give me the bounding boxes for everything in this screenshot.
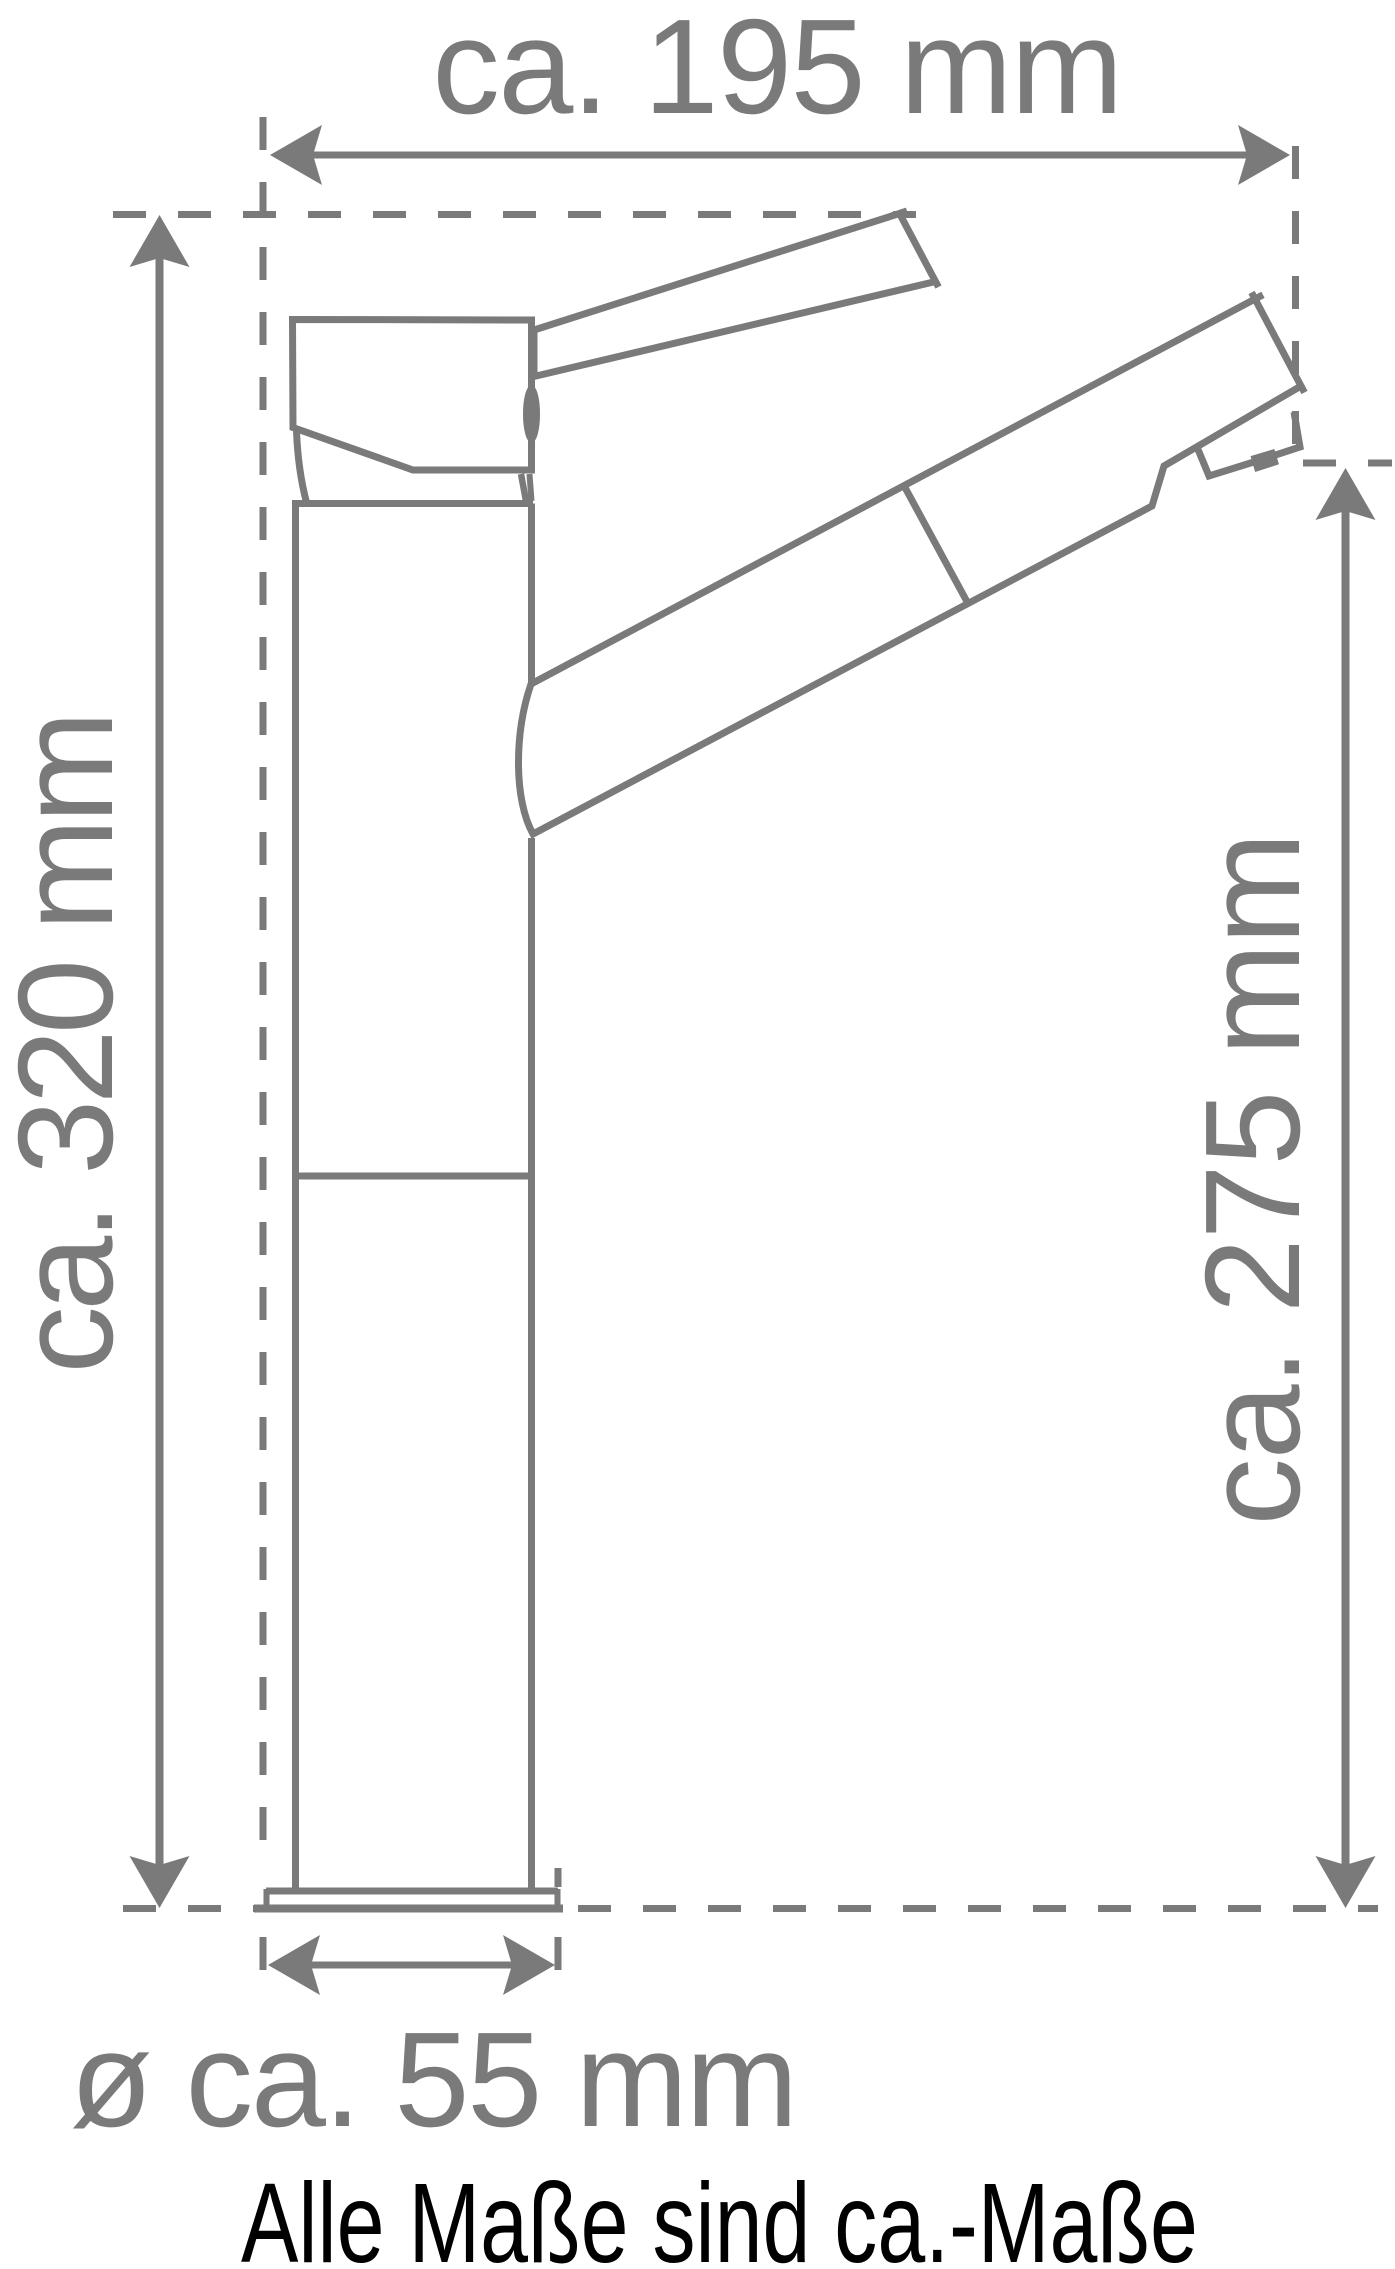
svg-text:ca. 275 mm: ca. 275 mm — [1177, 833, 1328, 1525]
svg-text:ca. 320 mm: ca. 320 mm — [0, 715, 141, 1373]
svg-text:ca. 195 mm: ca. 195 mm — [432, 0, 1121, 142]
svg-text:ø ca. 55 mm: ø ca. 55 mm — [70, 2004, 796, 2155]
svg-text:Alle Maße sind ca.-Maße: Alle Maße sind ca.-Maße — [241, 2161, 1198, 2269]
